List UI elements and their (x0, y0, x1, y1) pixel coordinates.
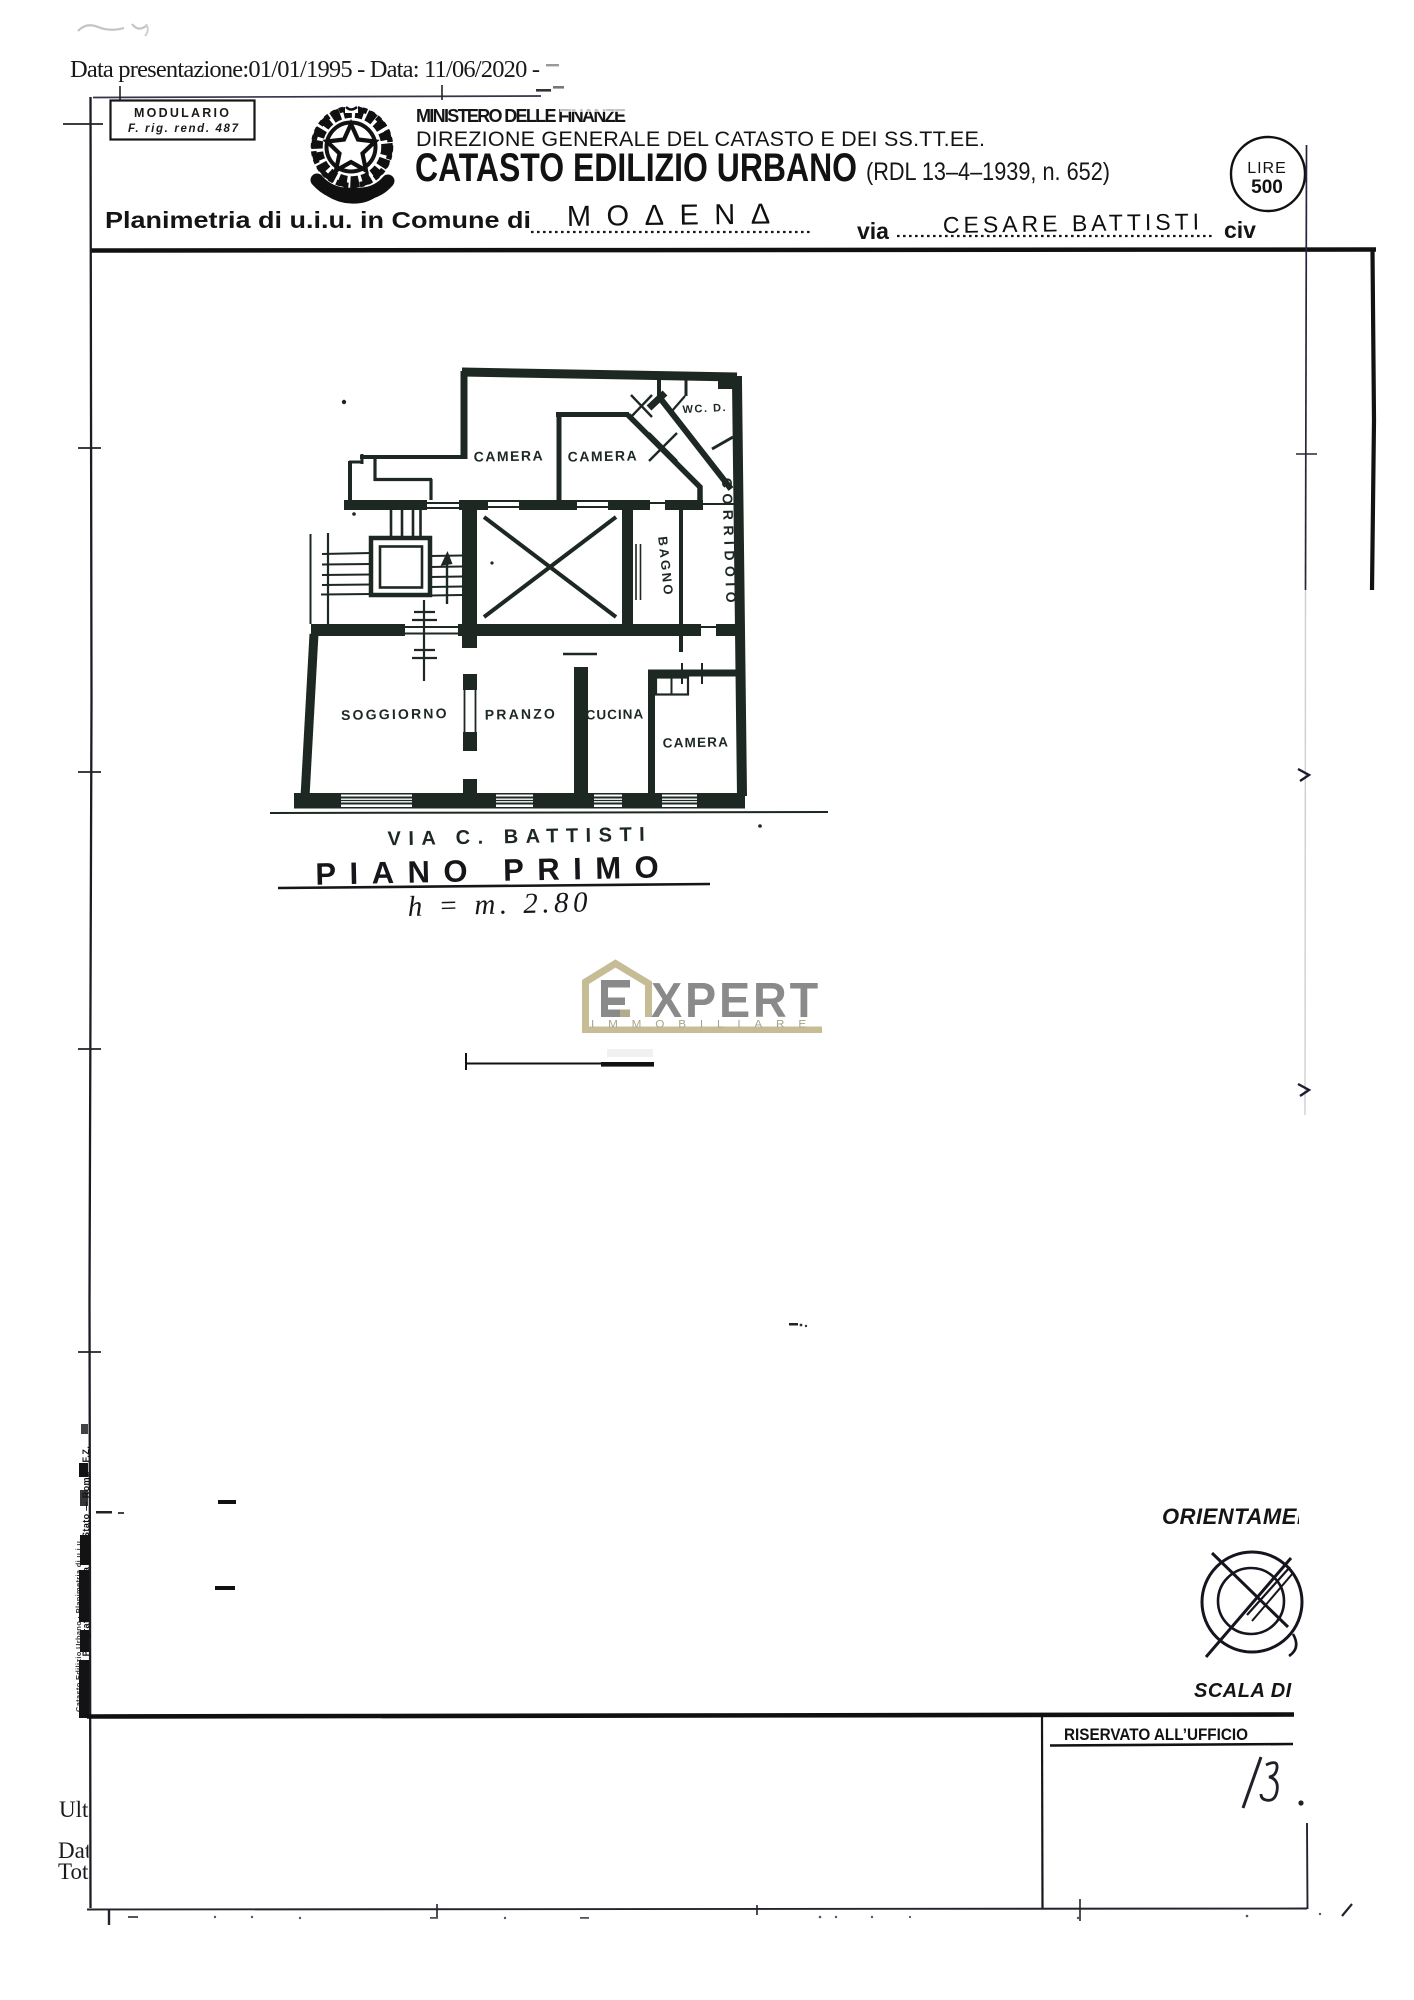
svg-text:CESARE BATTISTI: CESARE BATTISTI (943, 208, 1204, 238)
svg-text:CATASTO EDILIZIO URBANO: CATASTO EDILIZIO URBANO (415, 146, 857, 190)
svg-text:CAMERA: CAMERA (474, 447, 545, 464)
svg-text:WC. D.: WC. D. (682, 402, 727, 416)
svg-text:IMMOBILIARE: IMMOBILIARE (591, 1019, 820, 1031)
svg-text:Ult: Ult (59, 1797, 89, 1822)
svg-text:MOΔENΔ: MOΔENΔ (567, 198, 786, 233)
svg-text:CAMERA: CAMERA (568, 447, 639, 464)
svg-text:500: 500 (1251, 177, 1283, 198)
svg-text:Data presentazione:01/01/1995: Data presentazione:01/01/1995 - Data: 11… (70, 56, 540, 83)
svg-text:PRANZO: PRANZO (485, 705, 558, 722)
svg-text:ORIENTAMEN: ORIENTAMEN (1162, 1504, 1314, 1529)
svg-text:LIRE: LIRE (1247, 160, 1287, 177)
svg-text:SOGGIORNO: SOGGIORNO (341, 705, 449, 723)
svg-text:RISERVATO ALL’UFFICIO: RISERVATO ALL’UFFICIO (1064, 1726, 1248, 1744)
svg-text:Tot: Tot (58, 1859, 89, 1884)
svg-text:MODULARIO: MODULARIO (134, 106, 230, 120)
svg-text:via: via (857, 218, 889, 244)
svg-text:(RDL 13–4–1939, n. 652): (RDL 13–4–1939, n. 652) (866, 158, 1110, 186)
svg-text:Planimetria di u.i.u. in Comun: Planimetria di u.i.u. in Comune di (105, 207, 531, 233)
svg-text:SCALA DI: SCALA DI (1194, 1680, 1292, 1702)
svg-text:VIA C. BATTISTI: VIA C. BATTISTI (387, 824, 652, 851)
svg-text:civ: civ (1224, 217, 1256, 243)
svg-text:CAMERA: CAMERA (663, 734, 730, 750)
svg-text:h = m. 2.80: h = m. 2.80 (407, 886, 592, 923)
svg-text:CUCINA: CUCINA (586, 706, 645, 722)
